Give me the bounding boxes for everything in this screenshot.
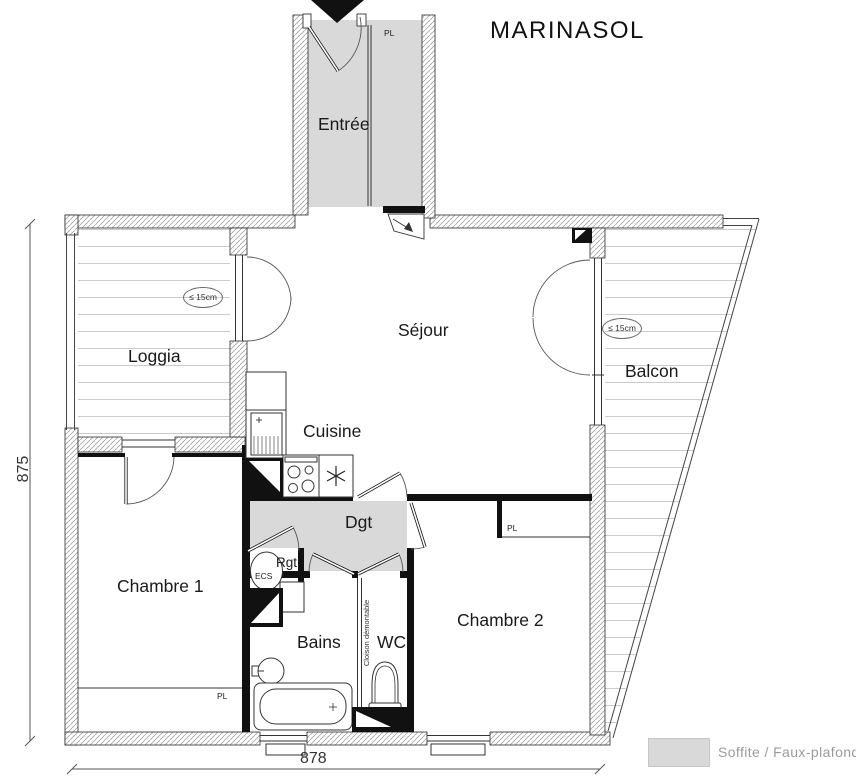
entrance-arrow-icon xyxy=(311,0,364,23)
loggia-railing xyxy=(67,233,75,430)
room-label-dgt: Dgt xyxy=(345,512,372,533)
room-label-sejour: Séjour xyxy=(398,320,449,341)
cloison-demontable-label: Cloison démontable xyxy=(362,578,372,688)
ecs-label: ECS xyxy=(255,571,272,581)
room-label-cuisine: Cuisine xyxy=(303,421,361,442)
legend-swatch-faux-plafond xyxy=(648,738,710,767)
room-label-wc: WC xyxy=(377,632,406,653)
loggia-depth-note: ≤ 15cm xyxy=(183,287,223,308)
loggia-floor xyxy=(78,228,230,437)
sejour-entry-door-symbol xyxy=(388,214,424,239)
room-label-chambre2: Chambre 2 xyxy=(457,610,544,631)
legend-label: Soffite / Faux-plafond xyxy=(718,744,856,760)
room-label-bains: Bains xyxy=(297,632,341,653)
dimension-width: 878 xyxy=(300,750,327,768)
room-label-balcon: Balcon xyxy=(625,361,679,382)
balcon-depth-note: ≤ 15cm xyxy=(602,318,642,339)
floor-plan-drawing xyxy=(0,0,856,782)
room-label-entree: Entrée xyxy=(318,114,370,135)
closet-label-chambre1: PL xyxy=(217,691,227,701)
kitchen-sink-icon xyxy=(251,413,282,455)
room-label-loggia: Loggia xyxy=(128,346,181,367)
dimension-height: 875 xyxy=(15,433,33,505)
room-label-chambre1: Chambre 1 xyxy=(117,576,204,597)
room-label-rgt: Rgt xyxy=(276,555,297,570)
closet-label-chambre2: PL xyxy=(507,523,517,533)
deck-floors xyxy=(78,228,757,737)
closet-label-entree: PL xyxy=(384,28,394,38)
toilet-icon xyxy=(372,662,398,706)
plan-title: MARINASOL xyxy=(490,17,645,45)
floor-plan: MARINASOL Entrée Loggia Séjour Balcon Cu… xyxy=(0,0,856,782)
